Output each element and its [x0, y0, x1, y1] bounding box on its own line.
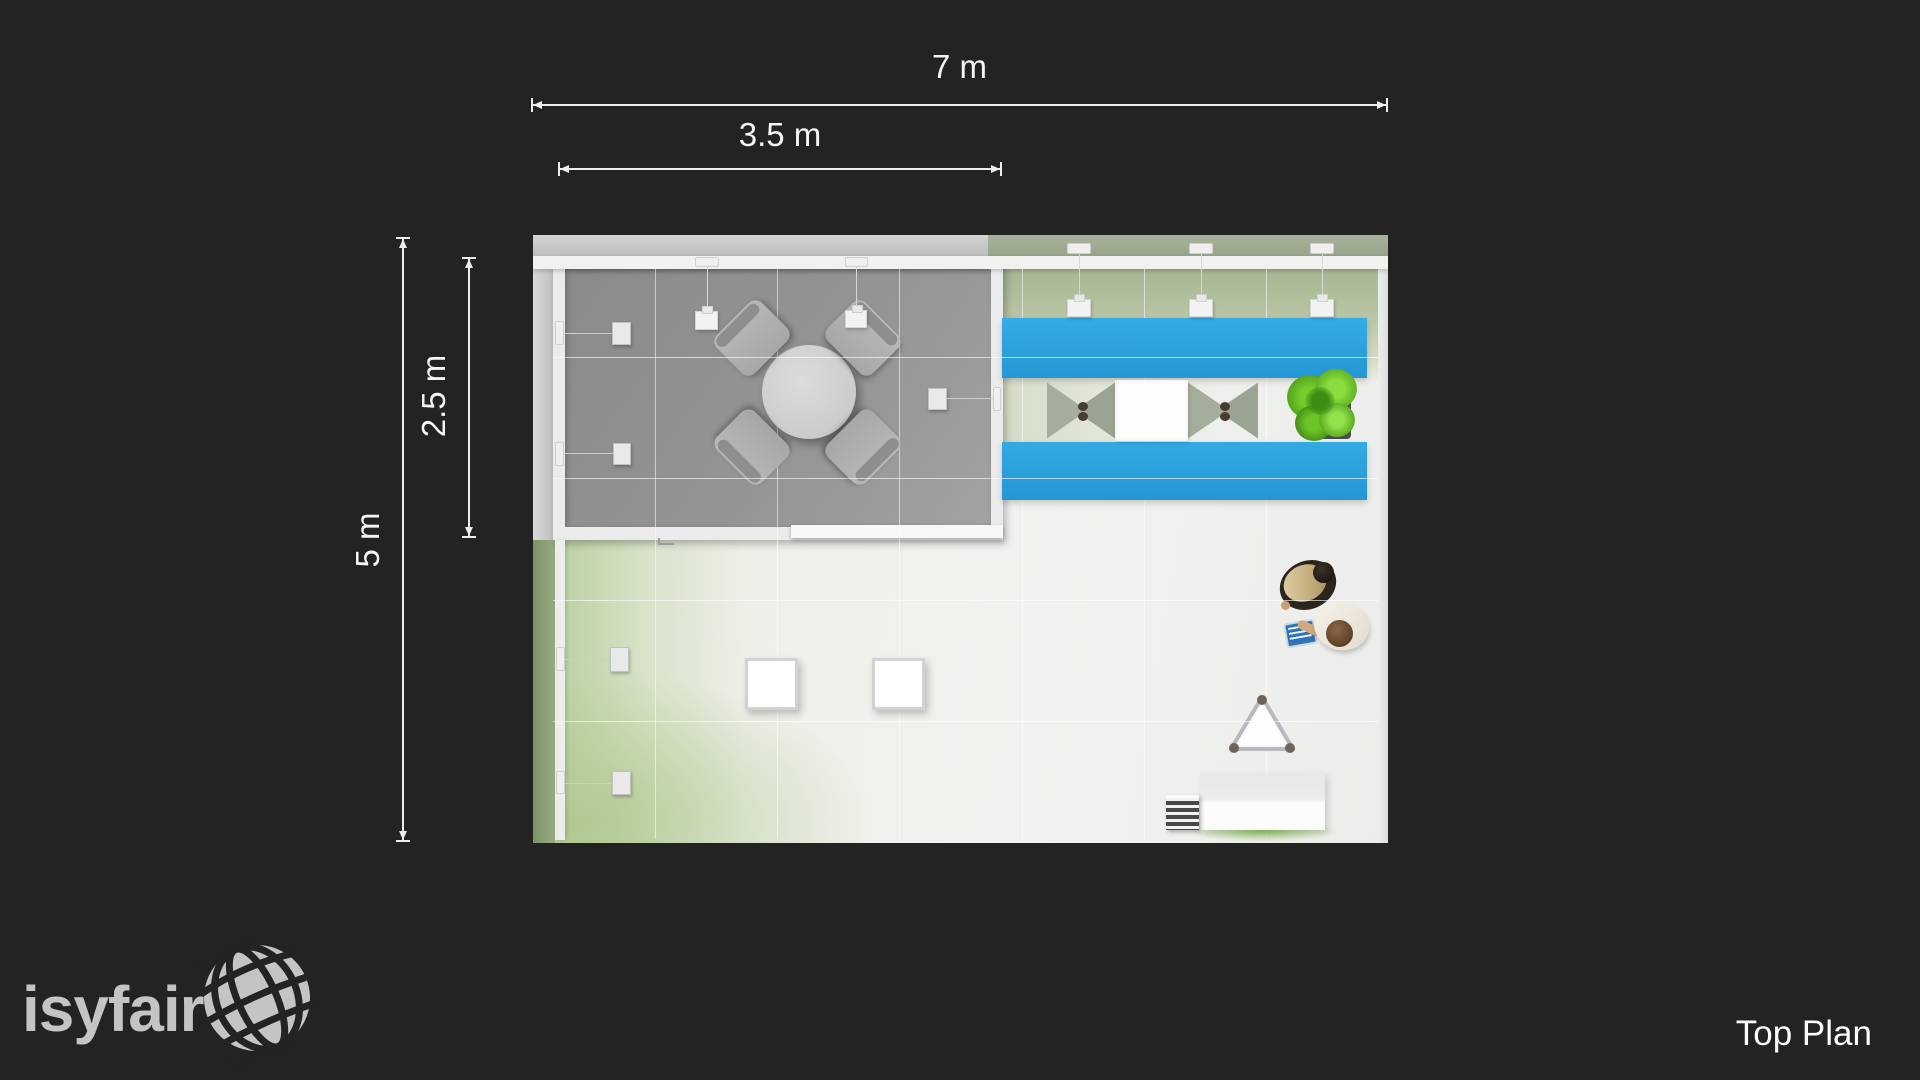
cable: [947, 398, 993, 399]
grid-line-v: [777, 268, 778, 839]
light-cord: [1201, 254, 1202, 299]
cable: [565, 783, 612, 784]
blue-counter-top: [1002, 318, 1367, 378]
grid-line-v: [655, 268, 656, 839]
grid-line-h: [553, 600, 1378, 601]
visitor-head: [1313, 562, 1334, 583]
wall-mount: [555, 321, 564, 345]
dim-width-total-line: [531, 104, 1388, 106]
cable: [565, 659, 610, 660]
wall-screen: [610, 647, 629, 672]
host: [1278, 595, 1378, 655]
bar-stool: [1188, 380, 1258, 441]
wall-mount: [555, 442, 564, 466]
dim-width-total-label: 7 m: [531, 48, 1388, 86]
ceiling-mount: [845, 257, 868, 267]
brochure-rack: [1166, 795, 1199, 830]
dim-depth-total-label: 5 m: [349, 512, 387, 567]
ceiling-mount: [695, 257, 719, 267]
dim-depth-half-label: 2.5 m: [415, 355, 453, 438]
tiled-globe-icon: [196, 926, 318, 1068]
grid-line-h: [553, 357, 1378, 358]
light-cord: [707, 267, 708, 311]
bar-stool: [1047, 380, 1115, 441]
seating-cube: [872, 658, 925, 710]
pendant-light: [1189, 299, 1213, 317]
wall-screen: [613, 443, 631, 465]
triangle-stool: [1227, 693, 1297, 755]
brand-logo-text: isyfair: [22, 972, 204, 1046]
light-cord: [1322, 254, 1323, 299]
light-cord: [856, 267, 857, 310]
cable: [564, 333, 612, 334]
door-handle: [658, 538, 674, 545]
view-caption: Top Plan: [1736, 1014, 1872, 1054]
pendant-light: [1310, 299, 1334, 317]
reception-desk: [1200, 773, 1325, 830]
seating-cube: [745, 658, 798, 710]
grid-line-h: [553, 478, 1378, 479]
ceiling-mount: [1189, 243, 1213, 254]
dim-width-half-line: [558, 168, 1002, 170]
wall-screen: [612, 771, 631, 795]
host-head: [1326, 620, 1353, 647]
grid-line-v: [899, 268, 900, 839]
back-wall: [533, 256, 1388, 269]
dim-width-half-label: 3.5 m: [558, 116, 1002, 154]
round-table: [762, 345, 856, 439]
pendant-light: [1067, 299, 1091, 317]
plant: [1289, 373, 1365, 445]
booth-plan: [533, 235, 1388, 843]
light-cord: [1079, 254, 1080, 299]
bar-table: [1115, 380, 1188, 441]
ceiling-mount: [1310, 243, 1334, 254]
dim-depth-total-line: [402, 237, 404, 842]
wall-mount: [556, 771, 565, 794]
blue-counter-bottom: [1002, 442, 1367, 500]
left-wall: [555, 540, 565, 840]
booth-right-rim: [1378, 256, 1388, 843]
wall-screen: [612, 322, 631, 345]
wall-mount: [993, 387, 1001, 411]
pendant-light: [695, 311, 718, 330]
booth-left-rim: [533, 256, 553, 540]
pendant-light: [845, 310, 867, 328]
cable: [564, 453, 613, 454]
floor-green-bottom-left: [555, 665, 885, 843]
grid-line-h: [553, 721, 1378, 722]
top-plan-view: 7 m 3.5 m 5 m 2.5 m: [0, 0, 1920, 1080]
meeting-room-sliding-door: [791, 525, 1003, 538]
dim-depth-half-line: [468, 257, 470, 538]
wall-screen: [928, 388, 947, 410]
wall-mount: [556, 647, 565, 671]
ceiling-mount: [1067, 243, 1091, 254]
left-wall-panel: [533, 540, 555, 843]
